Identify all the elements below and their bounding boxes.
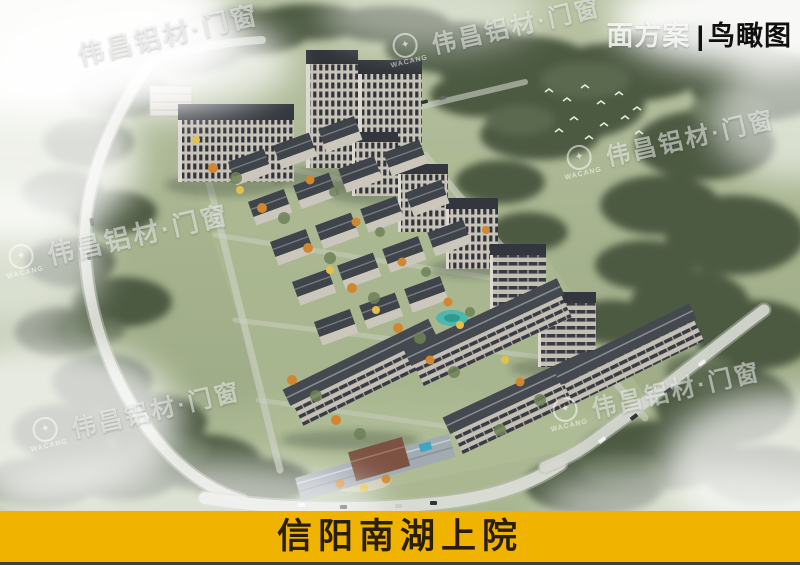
view-label-separator: | [696,21,705,51]
screenshot-root: ✦WACANG 伟昌铝材·门窗 ✦WACANG 伟昌铝材·门窗 ✦WACANG … [0,0,800,565]
aerial-view: ✦WACANG 伟昌铝材·门窗 ✦WACANG 伟昌铝材·门窗 ✦WACANG … [0,0,800,511]
view-label-title: 鸟瞰图 [708,21,792,51]
project-title: 信阳南湖上院 [277,519,523,554]
title-banner: 信阳南湖上院 [0,511,800,562]
view-type-label: 面方案|鸟瞰图 [606,14,792,53]
view-label-prefix: 面方案 [606,21,690,51]
aerial-rendering-svg [0,0,800,511]
